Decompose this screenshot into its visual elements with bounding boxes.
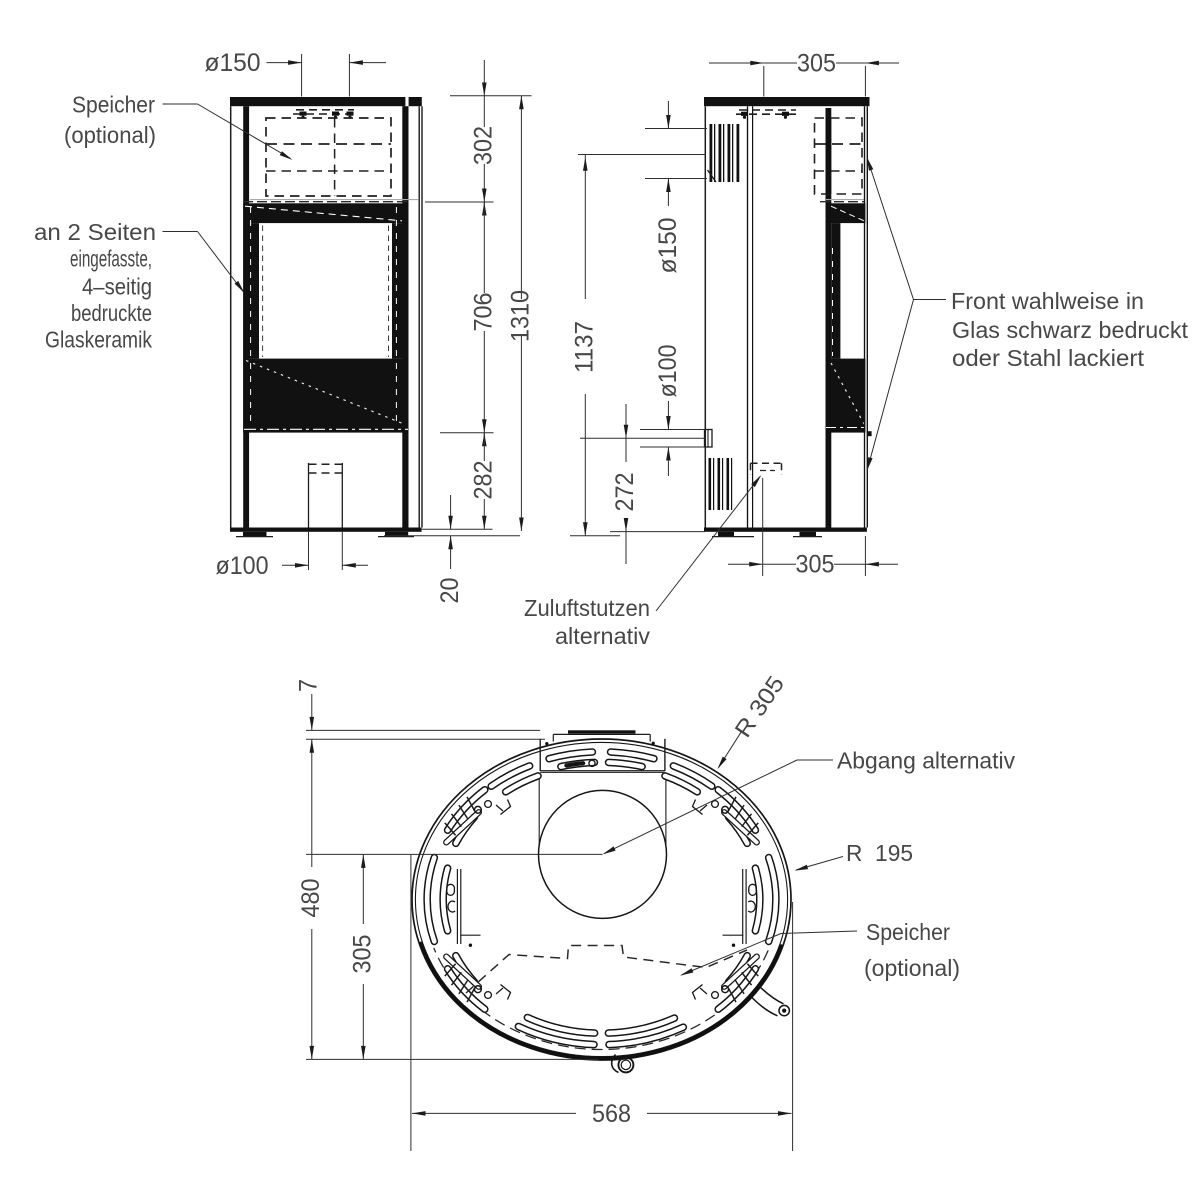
- svg-text:706: 706: [470, 293, 498, 332]
- svg-text:alternativ: alternativ: [555, 623, 650, 649]
- svg-text:305: 305: [797, 49, 836, 77]
- svg-text:272: 272: [611, 473, 639, 512]
- svg-text:bedruckte: bedruckte: [71, 300, 152, 326]
- svg-text:ø100: ø100: [216, 552, 269, 580]
- svg-text:480: 480: [297, 879, 325, 918]
- svg-text:oder Stahl lackiert: oder Stahl lackiert: [952, 345, 1144, 371]
- svg-text:an 2 Seiten: an 2 Seiten: [34, 219, 156, 245]
- svg-text:Front wahlweise in: Front wahlweise in: [951, 288, 1144, 314]
- svg-text:ø100: ø100: [654, 345, 682, 398]
- svg-text:(optional): (optional): [64, 122, 156, 148]
- svg-text:4–seitig: 4–seitig: [82, 273, 152, 299]
- svg-text:Glaskeramik: Glaskeramik: [45, 327, 152, 353]
- svg-text:Glas schwarz bedruckt: Glas schwarz bedruckt: [952, 317, 1188, 343]
- svg-text:Speicher: Speicher: [866, 919, 950, 945]
- svg-text:R 195: R 195: [846, 840, 913, 866]
- svg-text:Zuluftstutzen: Zuluftstutzen: [524, 595, 650, 621]
- svg-text:302: 302: [470, 126, 498, 165]
- svg-text:eingefasste,: eingefasste,: [70, 246, 152, 272]
- svg-text:1310: 1310: [507, 290, 535, 342]
- svg-text:ø150: ø150: [654, 218, 682, 274]
- svg-text:(optional): (optional): [864, 955, 960, 981]
- svg-text:282: 282: [470, 461, 498, 500]
- svg-text:20: 20: [436, 578, 464, 604]
- svg-text:305: 305: [349, 935, 377, 974]
- svg-text:Speicher: Speicher: [72, 92, 155, 118]
- svg-text:568: 568: [592, 1100, 631, 1128]
- svg-text:7: 7: [295, 679, 323, 692]
- svg-text:305: 305: [796, 551, 835, 579]
- svg-text:ø150: ø150: [205, 49, 261, 77]
- svg-text:1137: 1137: [571, 321, 599, 373]
- svg-text:Abgang alternativ: Abgang alternativ: [837, 748, 1015, 774]
